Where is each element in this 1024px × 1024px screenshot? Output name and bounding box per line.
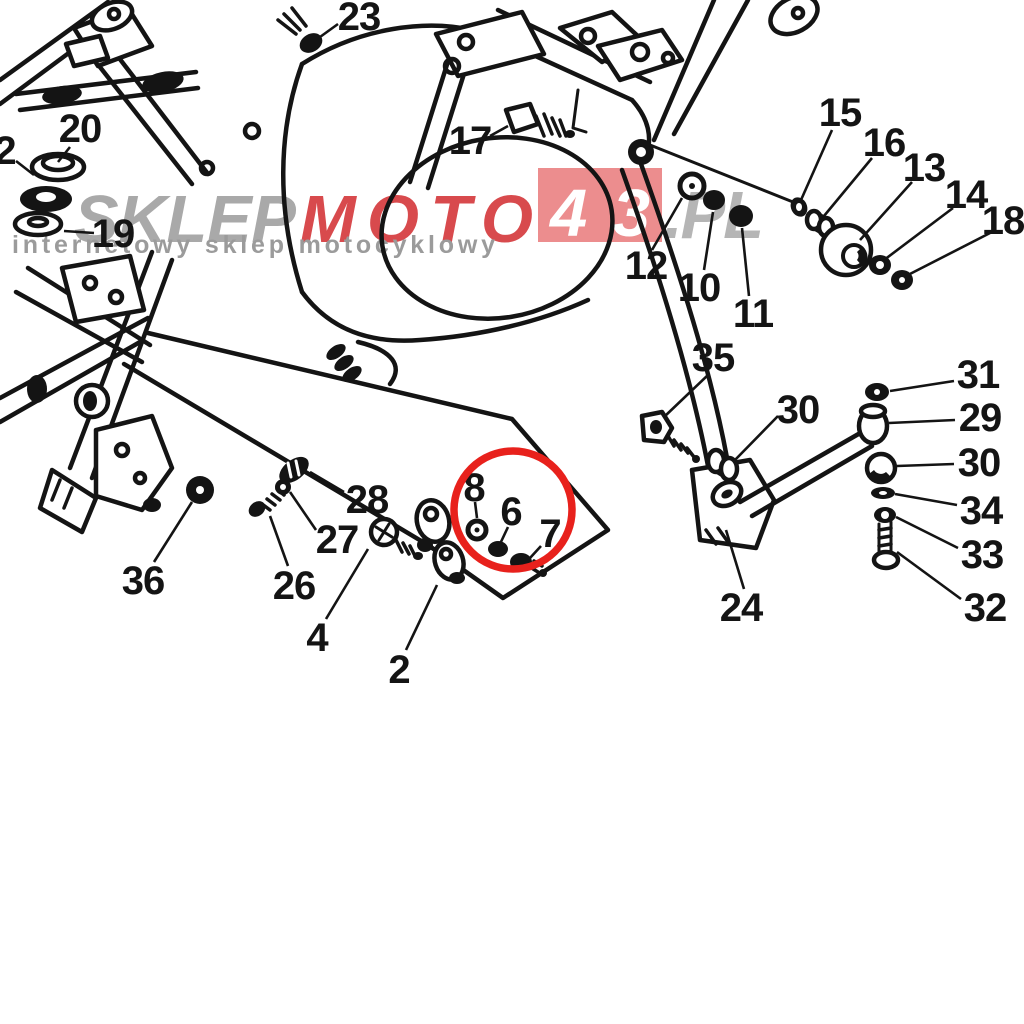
frame-hook xyxy=(358,342,396,384)
part-label-16: 16 xyxy=(863,121,906,165)
leader-line-34 xyxy=(895,494,957,505)
hex-fitting xyxy=(66,36,108,66)
part-label-2: 2 xyxy=(388,648,409,692)
bracket-plate xyxy=(764,0,824,42)
bracket-tick xyxy=(573,90,586,132)
part-34-washer xyxy=(871,487,895,499)
part-label-17: 17 xyxy=(449,119,492,163)
leader-line-16 xyxy=(824,158,872,216)
part-label-33: 33 xyxy=(961,533,1004,577)
part-label-35: 35 xyxy=(692,336,735,380)
part-33-washer xyxy=(874,507,896,523)
leader-line-29 xyxy=(889,420,955,423)
frame-lug-hole xyxy=(636,147,646,157)
swingarm-strip xyxy=(124,333,608,598)
part-label-6: 6 xyxy=(500,490,521,534)
part-29-joint xyxy=(859,405,887,443)
part-23-bolt xyxy=(278,8,326,57)
part-label-18: 18 xyxy=(982,199,1024,243)
bracket-plate xyxy=(96,416,172,510)
leader-line-17 xyxy=(490,126,508,136)
leader-line-33 xyxy=(896,517,958,548)
part-label-11: 11 xyxy=(733,292,774,336)
leader-line-14 xyxy=(884,208,953,260)
frame-tube xyxy=(654,0,748,140)
bracket-plate xyxy=(436,12,544,76)
part-17-bolt xyxy=(506,104,575,138)
leader-line-15 xyxy=(801,130,832,200)
leader-line-32 xyxy=(897,552,961,599)
part-8-washer xyxy=(468,521,486,539)
parts-diagram-page: SKLEP MOTO 43 .PL internetowy sklep moto… xyxy=(0,0,1024,1024)
leader-line-36 xyxy=(154,502,192,562)
part-label-32: 32 xyxy=(964,586,1007,630)
part-label-34: 34 xyxy=(960,489,1004,533)
part-26-bolt xyxy=(246,489,284,520)
part-label-26: 26 xyxy=(273,564,316,608)
part-6-bolt xyxy=(488,541,508,557)
leader-line-30 xyxy=(897,464,954,466)
frame-spar-bottom xyxy=(302,292,588,341)
leader-line-23 xyxy=(320,24,338,37)
part-label-15: 15 xyxy=(819,91,862,135)
part-label-23: 23 xyxy=(338,0,381,39)
part-label-4: 4 xyxy=(306,616,329,660)
part-13-roller xyxy=(821,225,871,275)
part-30-ball-right xyxy=(867,454,895,482)
parts-diagram-canvas: SKLEP MOTO 43 .PL internetowy sklep moto… xyxy=(0,0,1024,1024)
frame-tube xyxy=(0,318,148,422)
bolt-hole xyxy=(245,124,259,138)
watermark-slogan: internetowy sklep motocyklowy xyxy=(12,231,498,259)
part-label-12: 12 xyxy=(625,244,668,288)
leader-line-13 xyxy=(860,182,912,240)
part-label-30: 30 xyxy=(958,441,1001,485)
leader-line-31 xyxy=(890,381,954,391)
part-20-cap xyxy=(32,154,84,180)
pivot-bushing-hole xyxy=(83,391,97,411)
part-label-2: 2 xyxy=(0,129,16,173)
part-10-collar xyxy=(703,190,725,210)
part-label-28: 28 xyxy=(346,478,389,522)
part-label-24: 24 xyxy=(720,586,764,630)
leader-line-26 xyxy=(270,516,288,566)
part-label-10: 10 xyxy=(678,266,721,310)
part-31-nut xyxy=(865,383,889,401)
bracket-plate xyxy=(62,256,144,322)
frame-lug xyxy=(27,375,47,403)
leader-line-27 xyxy=(290,492,316,530)
part-label-31: 31 xyxy=(957,353,1000,397)
leader-line-2 xyxy=(406,585,437,650)
bolt-hole xyxy=(201,162,213,174)
leader-line-35 xyxy=(664,375,708,417)
part-label-29: 29 xyxy=(959,396,1002,440)
part-19-washer xyxy=(15,186,72,235)
part-label-20: 20 xyxy=(59,107,102,151)
part-32-bolt xyxy=(874,522,898,568)
leader-line-30 xyxy=(734,416,778,461)
part-label-13: 13 xyxy=(903,146,946,190)
part-36-damper xyxy=(186,476,214,504)
leader-line-18 xyxy=(906,233,990,276)
part-35-bolt xyxy=(642,412,700,463)
part-11-collar xyxy=(729,205,753,227)
part-label-27: 27 xyxy=(316,518,359,562)
clamp-part xyxy=(324,341,365,385)
leader-line-28 xyxy=(310,472,344,492)
frame-lug xyxy=(143,498,161,512)
part-label-30: 30 xyxy=(777,388,820,432)
part-label-19: 19 xyxy=(92,212,135,256)
part-label-36: 36 xyxy=(122,559,165,603)
